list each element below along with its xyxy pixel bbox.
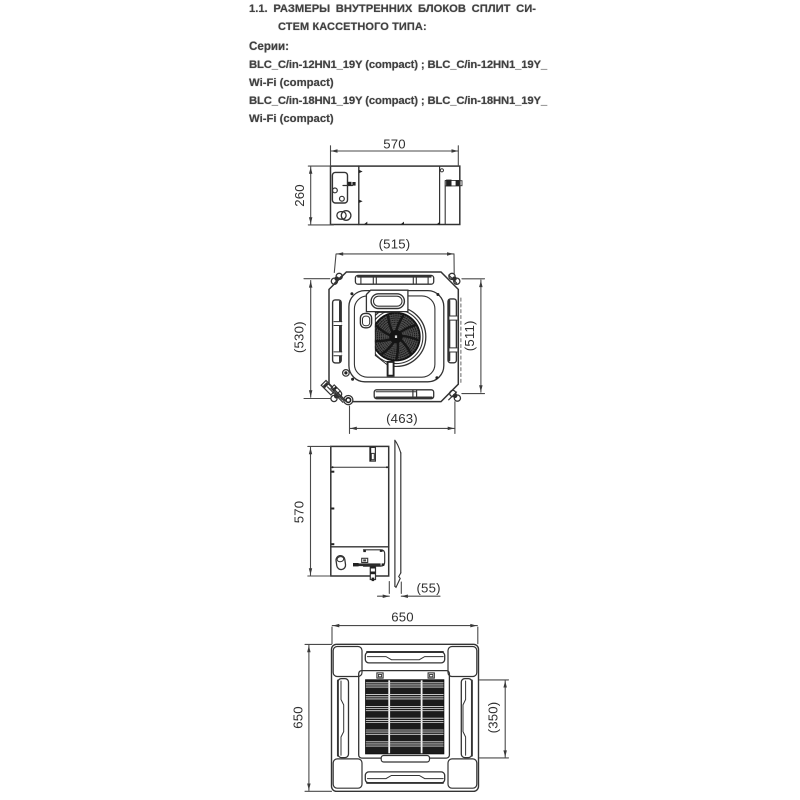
svg-text:650: 650 (290, 706, 305, 729)
svg-text:(55): (55) (416, 580, 440, 595)
svg-text:(515): (515) (379, 237, 411, 252)
svg-text:(463): (463) (386, 411, 418, 426)
svg-text:650: 650 (391, 609, 414, 624)
svg-text:(530): (530) (291, 321, 306, 353)
svg-text:570: 570 (291, 501, 306, 524)
svg-text:570: 570 (383, 136, 406, 151)
svg-text:(350): (350) (486, 702, 501, 734)
svg-text:260: 260 (292, 184, 307, 207)
svg-text:(511): (511) (462, 320, 477, 351)
